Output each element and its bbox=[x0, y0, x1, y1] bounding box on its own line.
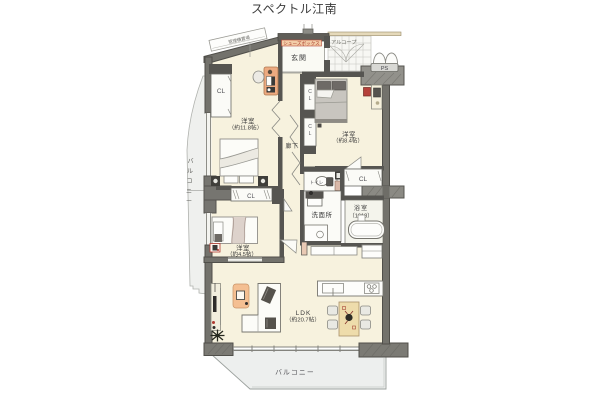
svg-text:CL: CL bbox=[217, 88, 226, 95]
svg-text:（約11.8帖）: （約11.8帖） bbox=[228, 124, 262, 132]
svg-text:CL: CL bbox=[359, 176, 368, 183]
svg-text:C: C bbox=[308, 89, 312, 95]
svg-text:バルコニー: バルコニー bbox=[275, 369, 315, 377]
svg-text:L: L bbox=[309, 96, 312, 102]
svg-text:廊下: 廊下 bbox=[285, 142, 298, 150]
svg-text:トイレ: トイレ bbox=[310, 180, 324, 185]
svg-text:シューズボックス: シューズボックス bbox=[283, 40, 320, 47]
svg-text:（約8.4帖）: （約8.4帖） bbox=[333, 137, 363, 145]
svg-text:PS: PS bbox=[381, 66, 389, 72]
svg-text:洋室: 洋室 bbox=[236, 243, 250, 252]
svg-text:CL: CL bbox=[247, 194, 255, 200]
svg-text:洋室: 洋室 bbox=[342, 130, 356, 139]
svg-text:LDK: LDK bbox=[296, 310, 312, 317]
svg-text:洋室: 洋室 bbox=[241, 116, 255, 125]
svg-text:洗面所: 洗面所 bbox=[312, 210, 333, 219]
svg-text:アルコープ: アルコープ bbox=[331, 39, 357, 46]
svg-text:浴室: 浴室 bbox=[354, 204, 368, 212]
svg-text:（約20.7帖）: （約20.7帖） bbox=[286, 316, 320, 324]
svg-text:C: C bbox=[308, 124, 312, 130]
svg-text:スペクトル江南: スペクトル江南 bbox=[251, 1, 337, 16]
svg-text:玄関: 玄関 bbox=[291, 53, 307, 62]
svg-text:L: L bbox=[309, 131, 312, 137]
